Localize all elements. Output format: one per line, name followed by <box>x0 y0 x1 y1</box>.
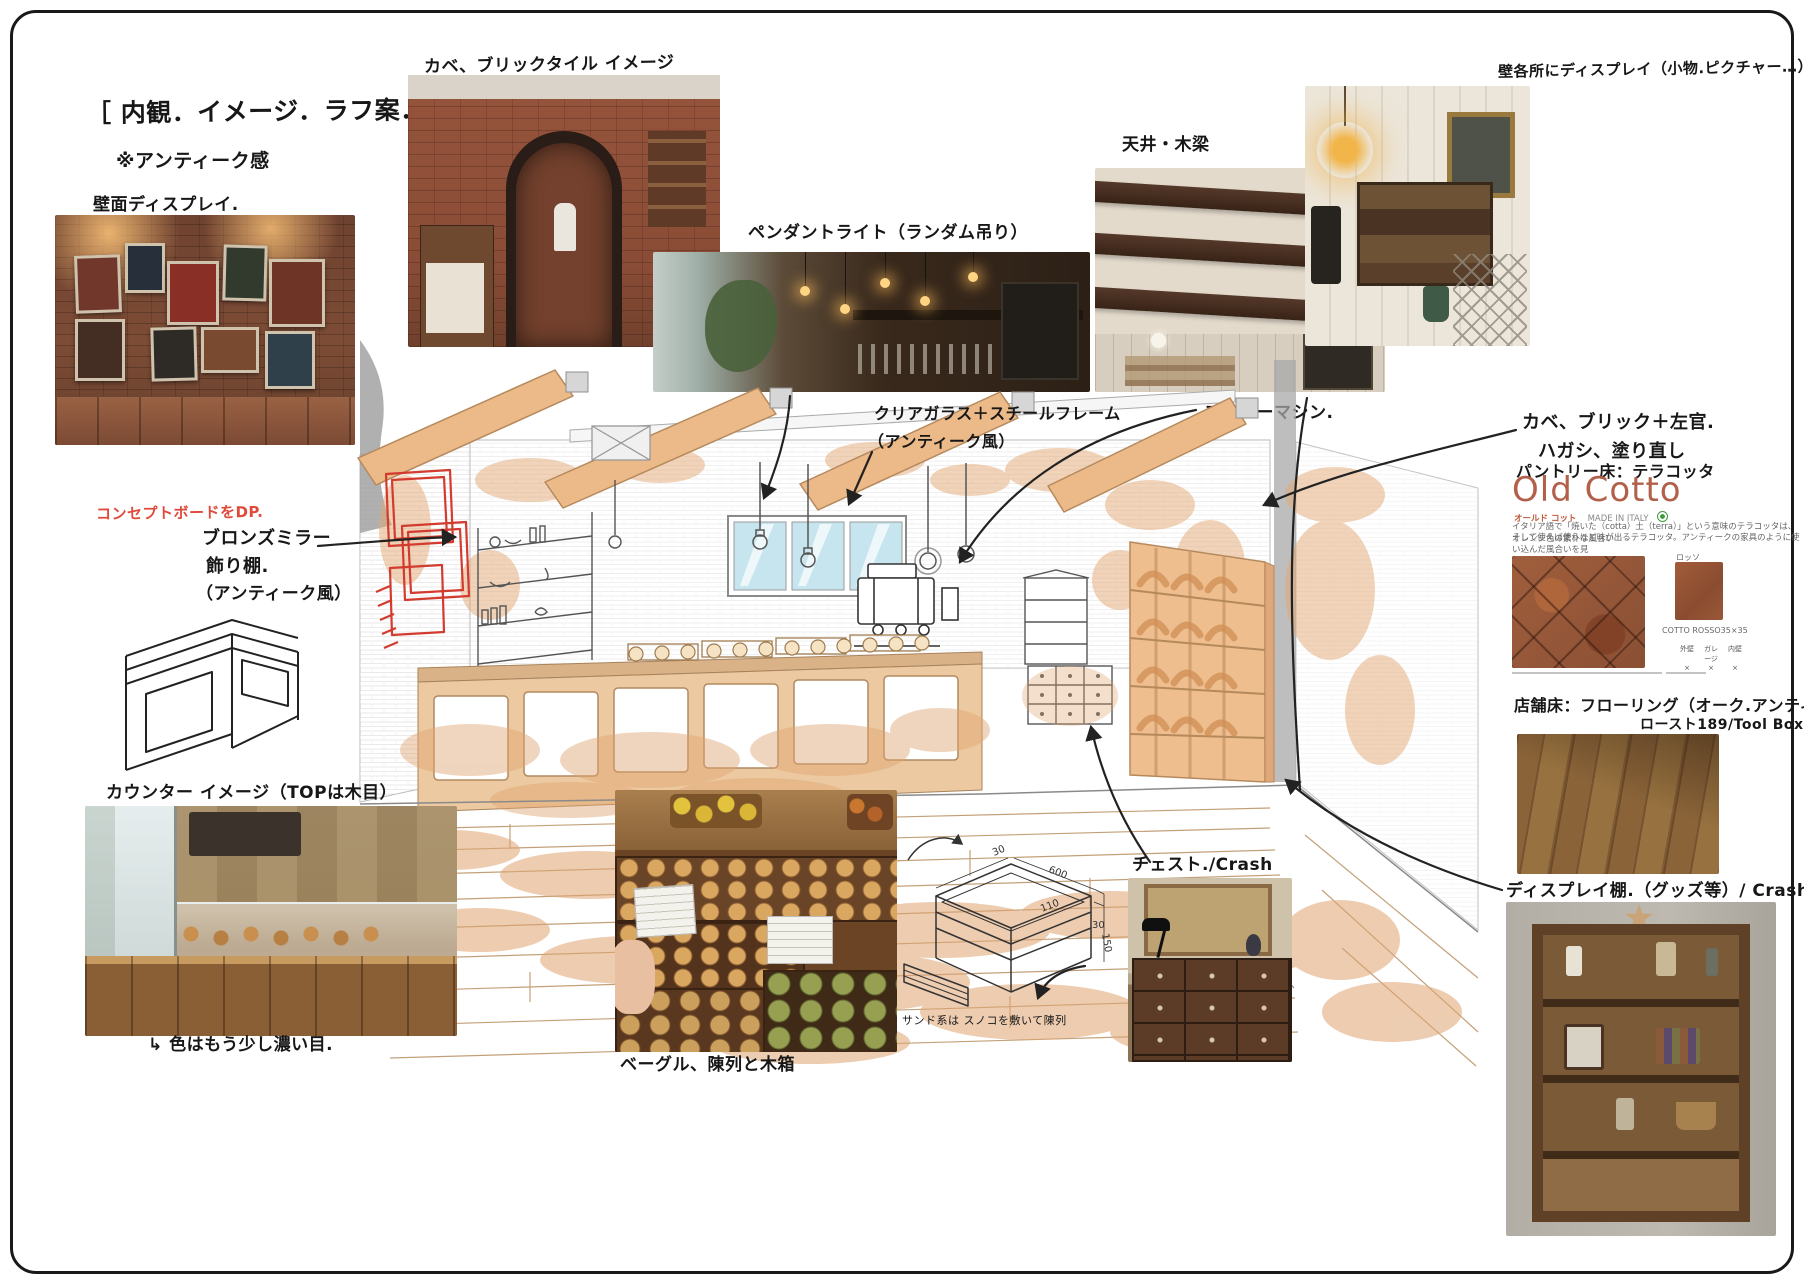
page-title: ［ 内観．イメージ．ラフ案．］ <box>86 90 439 130</box>
wall-display-photo <box>55 215 355 445</box>
counter-color-note: ↳ 色はもう少し濃い目. <box>148 1030 333 1055</box>
spec-mark: × <box>1678 664 1696 672</box>
bulb-cord <box>973 252 974 272</box>
moodboard: ［ 内観．イメージ．ラフ案．］ ※アンティーク感 壁面ディスプレイ. コンセプト… <box>0 0 1804 1284</box>
wall-spots-label: 壁各所にディスプレイ（小物.ピクチャー…） <box>1498 55 1804 81</box>
counter-image-label: カウンター イメージ（TOPは木目） <box>106 778 397 803</box>
picture-frame <box>269 259 325 327</box>
picture-frame <box>265 331 315 389</box>
display-shelf-label: ディスプレイ棚.（グッズ等）/ Crash <box>1506 876 1804 901</box>
lamp-cord <box>1344 86 1346 126</box>
green-bag <box>1423 286 1449 322</box>
glass-case <box>177 902 457 958</box>
brick-tile-label: カベ、ブリックタイル イメージ <box>424 48 675 77</box>
picture-frame <box>75 319 125 381</box>
edison-bulb <box>880 278 890 288</box>
picture-frame <box>222 244 267 301</box>
basket <box>1676 1102 1716 1130</box>
counter-photo <box>85 806 457 1036</box>
window <box>85 806 177 960</box>
flooring-photo <box>1517 734 1719 874</box>
bronze-mirror-label: ブロンズミラー <box>202 524 331 550</box>
picture-frame <box>74 254 122 314</box>
leather-bench <box>55 397 355 445</box>
old-cotto-logo: Old Cotto <box>1512 470 1682 510</box>
wall-plaster-label: カベ、ブリック＋左官. <box>1522 408 1714 434</box>
bulb-cord <box>805 252 806 286</box>
counter-corner-sketch <box>120 598 305 783</box>
hand <box>615 940 655 1014</box>
picture-frame <box>150 326 197 381</box>
edison-bulb <box>840 304 850 314</box>
price-card <box>767 916 833 964</box>
caption-bar <box>1512 672 1662 674</box>
spec-header: 外壁 <box>1678 644 1696 664</box>
crate-dim-t: 30 <box>991 844 1007 859</box>
bronze-mirror-label2: 飾り棚. <box>206 552 269 578</box>
spec-mark: × <box>1702 664 1720 672</box>
page-subtitle: ※アンティーク感 <box>116 146 270 173</box>
display-shelf-photo <box>1506 902 1776 1236</box>
wall-display-label: 壁面ディスプレイ. <box>93 190 239 215</box>
edison-bulb <box>800 286 810 296</box>
wall-display-spots-photo <box>1305 86 1530 346</box>
terracotta-tile-photo <box>1512 556 1645 668</box>
shop-floor-label: 店舗床：フローリング（オーク.アンティーク） <box>1514 692 1804 716</box>
shop-floor-label2: ロースト189/Tool Box <box>1640 714 1804 734</box>
amber-lamp <box>1317 122 1373 178</box>
wood-counter <box>85 956 457 1036</box>
small-frame <box>1564 1024 1604 1070</box>
spec-header: ガレージ <box>1702 644 1720 664</box>
white-beam <box>408 75 720 99</box>
old-cotto-desc2: そして使えば使うほど味が出るテラコッタ。アンティークの家具のように使い込んだ風合… <box>1512 531 1804 555</box>
ceiling-label: 天井・木梁 <box>1122 130 1210 155</box>
fruit-basket <box>847 794 893 830</box>
jar <box>1656 942 1676 976</box>
bagel-display-photo <box>615 790 897 1052</box>
clear-glass-label: クリアガラス＋スチールフレーム <box>874 400 1121 424</box>
spec-table: 外壁 ガレージ 内壁 × × × <box>1678 644 1744 672</box>
lemon-basket <box>670 794 762 828</box>
picture-frame <box>201 327 259 373</box>
jar <box>1566 946 1582 976</box>
menu-board <box>189 812 301 856</box>
person-silhouette <box>554 203 576 251</box>
bulb-cord <box>845 252 846 304</box>
bulb-cord <box>885 252 886 278</box>
rabbit-figurine <box>1246 934 1261 956</box>
green-bagel-tray <box>763 970 897 1052</box>
spec-header: 内壁 <box>1726 644 1744 664</box>
books <box>1656 1028 1700 1064</box>
wood-crate-sketch: 600 110 30 30 150 <box>896 816 1114 1022</box>
chest-photo <box>1128 878 1292 1062</box>
tile-swatch <box>1675 562 1723 620</box>
jar <box>1616 1098 1634 1130</box>
picture-frame <box>167 261 219 325</box>
caption-bar <box>1666 672 1706 674</box>
price-card <box>633 884 696 938</box>
edison-bulb <box>920 296 930 306</box>
product-code: COTTO ROSSO35×35 <box>1662 626 1748 635</box>
pendant-label: ペンダントライト（ランダム吊り） <box>748 218 1028 243</box>
chest-label: チェスト./Crash <box>1132 850 1273 875</box>
sunoko-note: サンド系は スノコを敷いて陳列 <box>902 1012 1067 1028</box>
crate-dim-t2: 30 <box>1092 920 1105 931</box>
coffee-grinder <box>1311 206 1341 284</box>
picture-frame <box>125 243 165 293</box>
crate-dim-h: 150 <box>1099 933 1113 954</box>
clear-glass-label2: （アンティーク風） <box>868 428 1015 452</box>
bagel-label: ベーグル、陳列と木箱 <box>620 1050 795 1075</box>
side-shelf <box>648 131 706 227</box>
curtain <box>426 263 484 333</box>
bottle <box>1706 948 1718 976</box>
edison-bulb <box>968 272 978 282</box>
concept-board-note: コンセプトボードをDP. <box>96 501 264 524</box>
desk-lamp <box>1142 918 1170 931</box>
bulb-cord <box>925 252 926 296</box>
drawer-chest <box>1132 958 1292 1062</box>
spec-mark: × <box>1726 664 1744 672</box>
